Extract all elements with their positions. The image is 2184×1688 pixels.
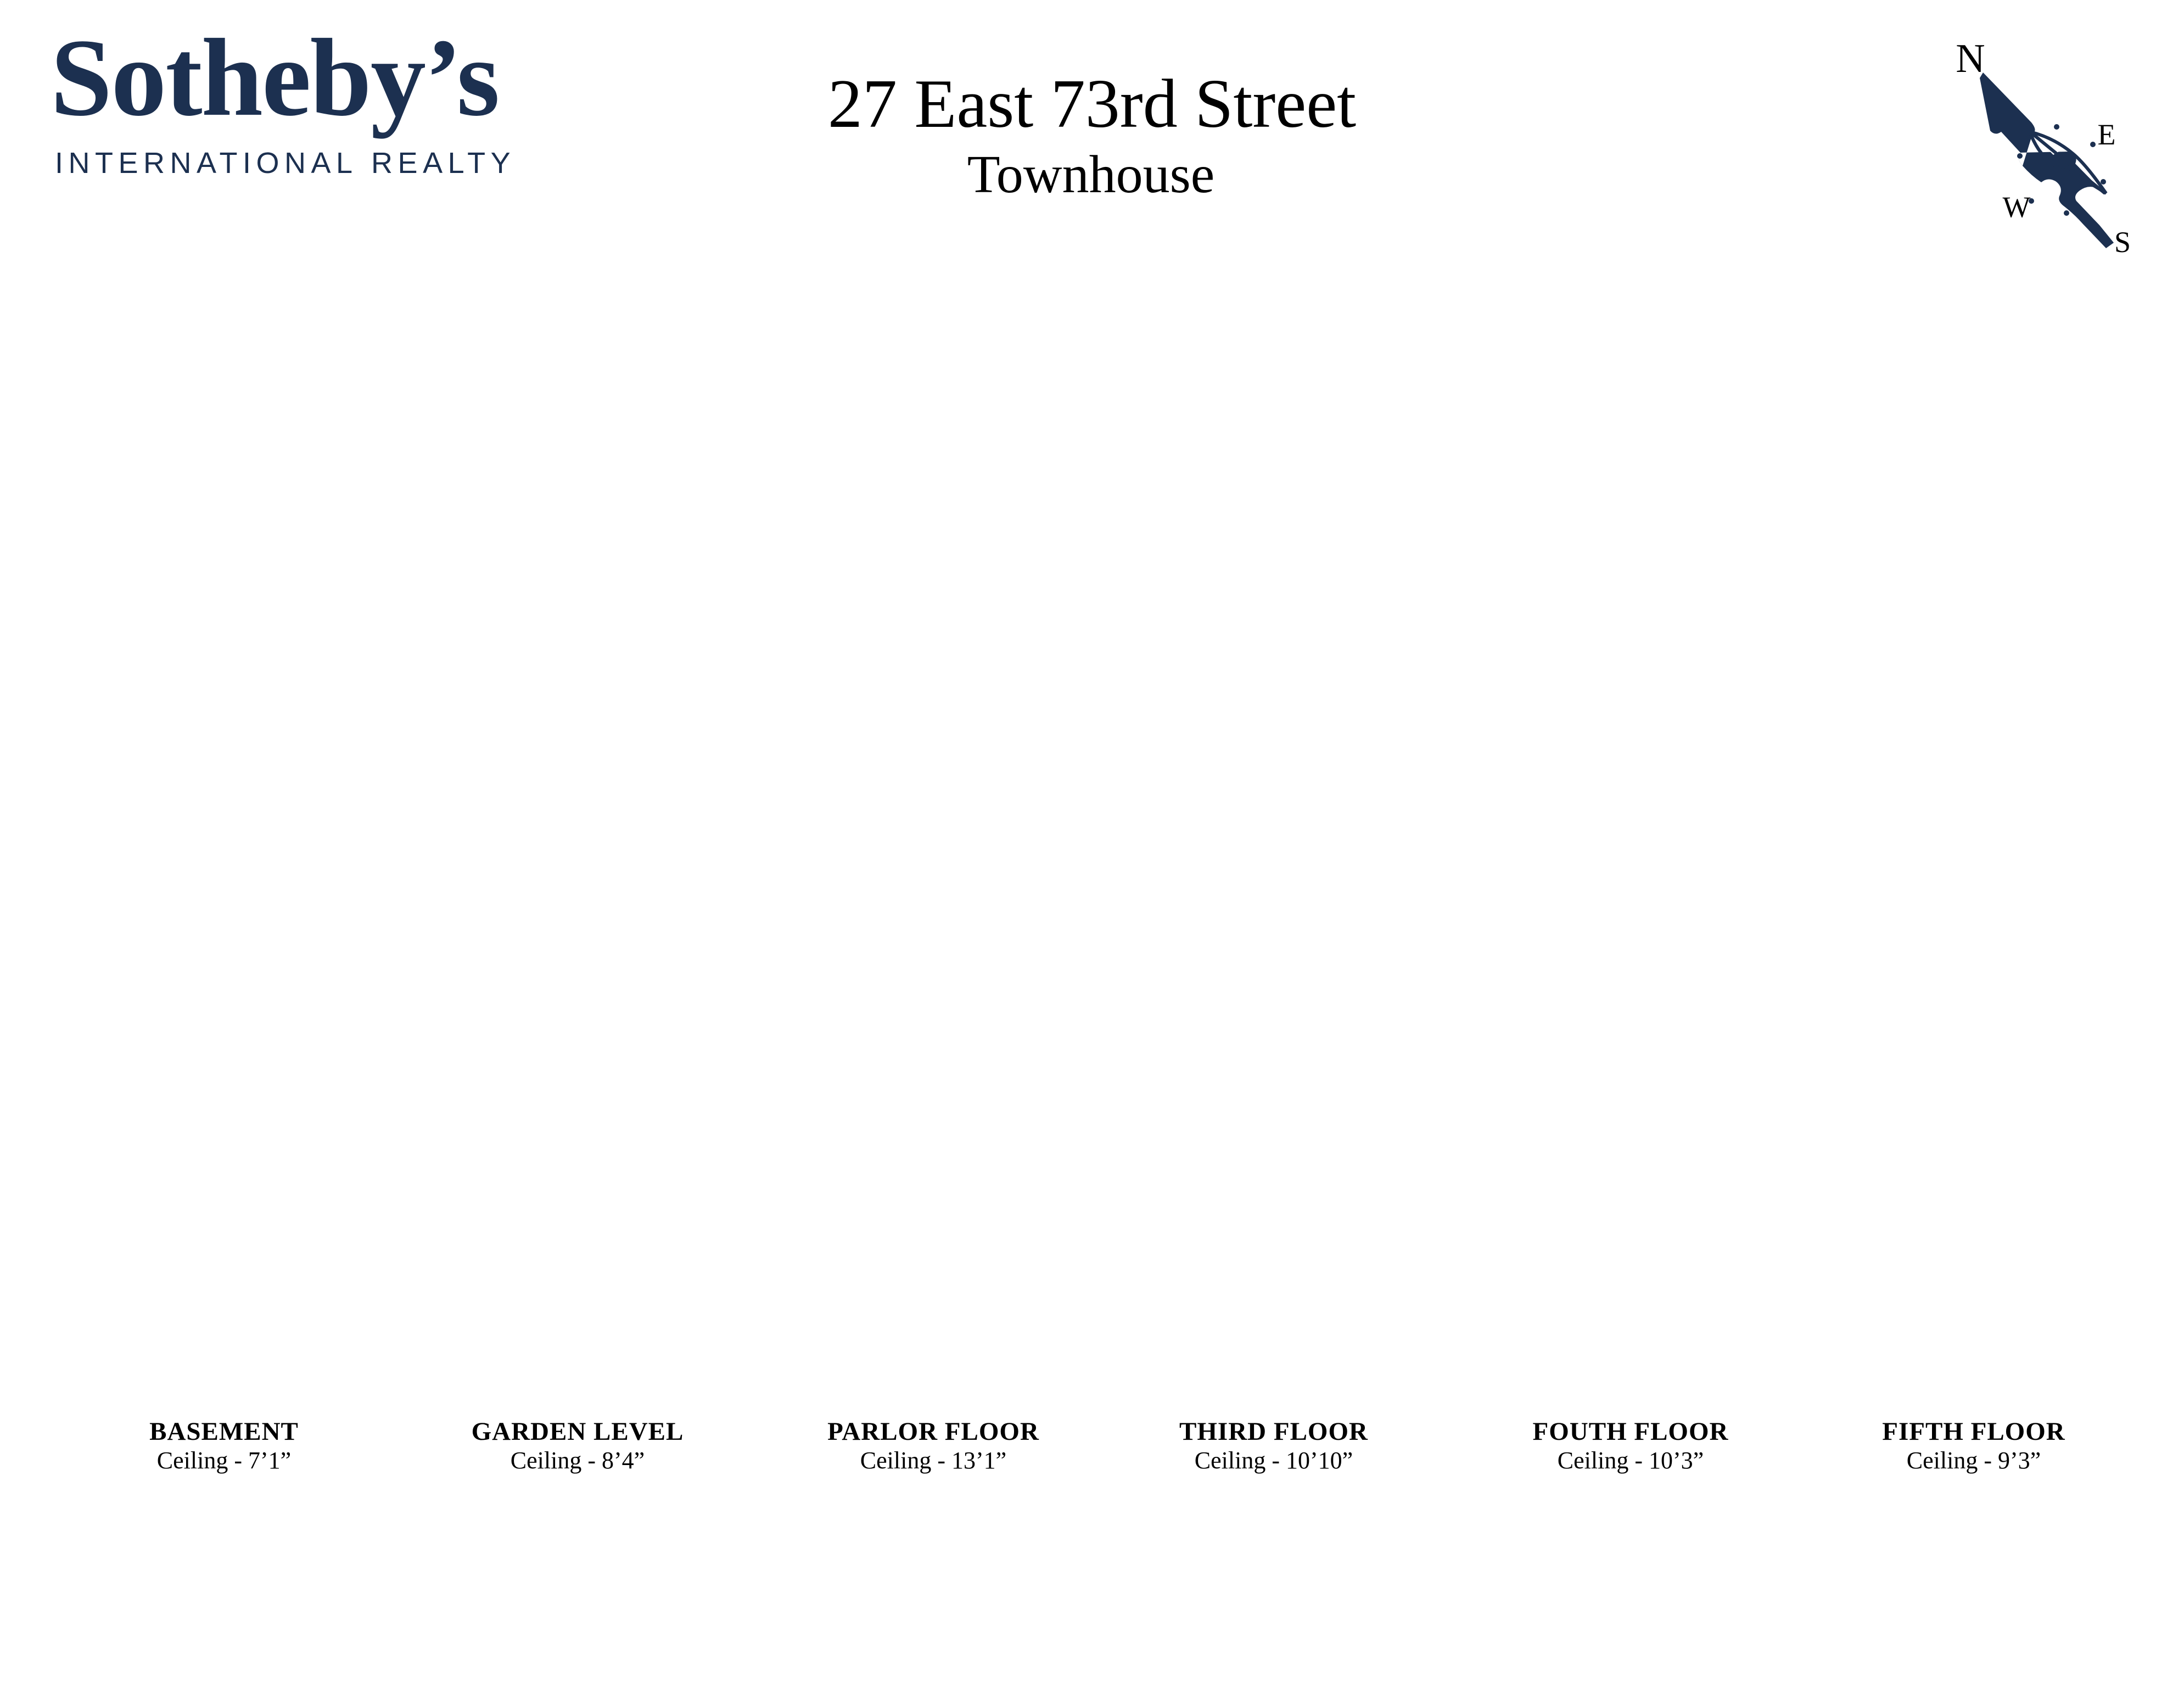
svg-text:S: S — [2114, 226, 2131, 259]
svg-text:W: W — [2003, 191, 2031, 223]
svg-text:N: N — [1956, 36, 1985, 81]
svg-text:E: E — [2098, 118, 2116, 151]
